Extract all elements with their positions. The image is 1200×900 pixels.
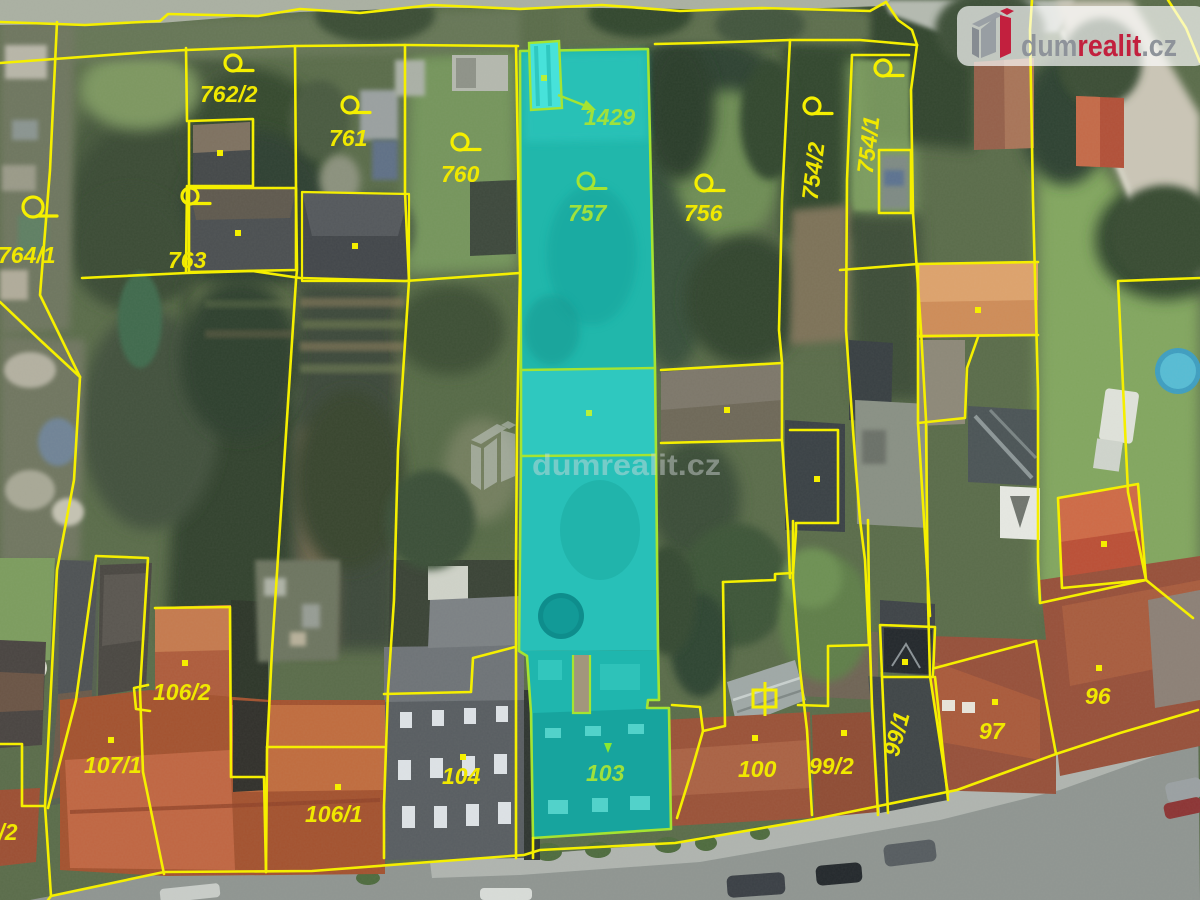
- svg-text:757: 757: [568, 200, 608, 226]
- svg-text:107/2: 107/2: [0, 819, 18, 845]
- svg-text:104: 104: [442, 763, 481, 789]
- svg-text:107/1: 107/1: [84, 752, 142, 778]
- svg-text:96: 96: [1085, 683, 1111, 709]
- svg-text:106/1: 106/1: [305, 801, 363, 827]
- svg-text:761: 761: [329, 125, 367, 151]
- svg-text:99/2: 99/2: [809, 753, 854, 779]
- svg-text:100: 100: [738, 756, 777, 782]
- svg-text:97: 97: [979, 718, 1006, 744]
- svg-text:763: 763: [168, 247, 207, 273]
- svg-text:103: 103: [586, 760, 625, 786]
- svg-text:dumrealit.cz: dumrealit.cz: [532, 449, 721, 482]
- svg-text:762/2: 762/2: [200, 81, 258, 107]
- svg-text:756: 756: [684, 200, 723, 226]
- svg-text:dumrealit.cz: dumrealit.cz: [1021, 28, 1177, 63]
- svg-text:760: 760: [441, 161, 480, 187]
- svg-text:764/1: 764/1: [0, 242, 56, 268]
- svg-text:106/2: 106/2: [153, 679, 211, 705]
- svg-text:1429: 1429: [584, 104, 635, 130]
